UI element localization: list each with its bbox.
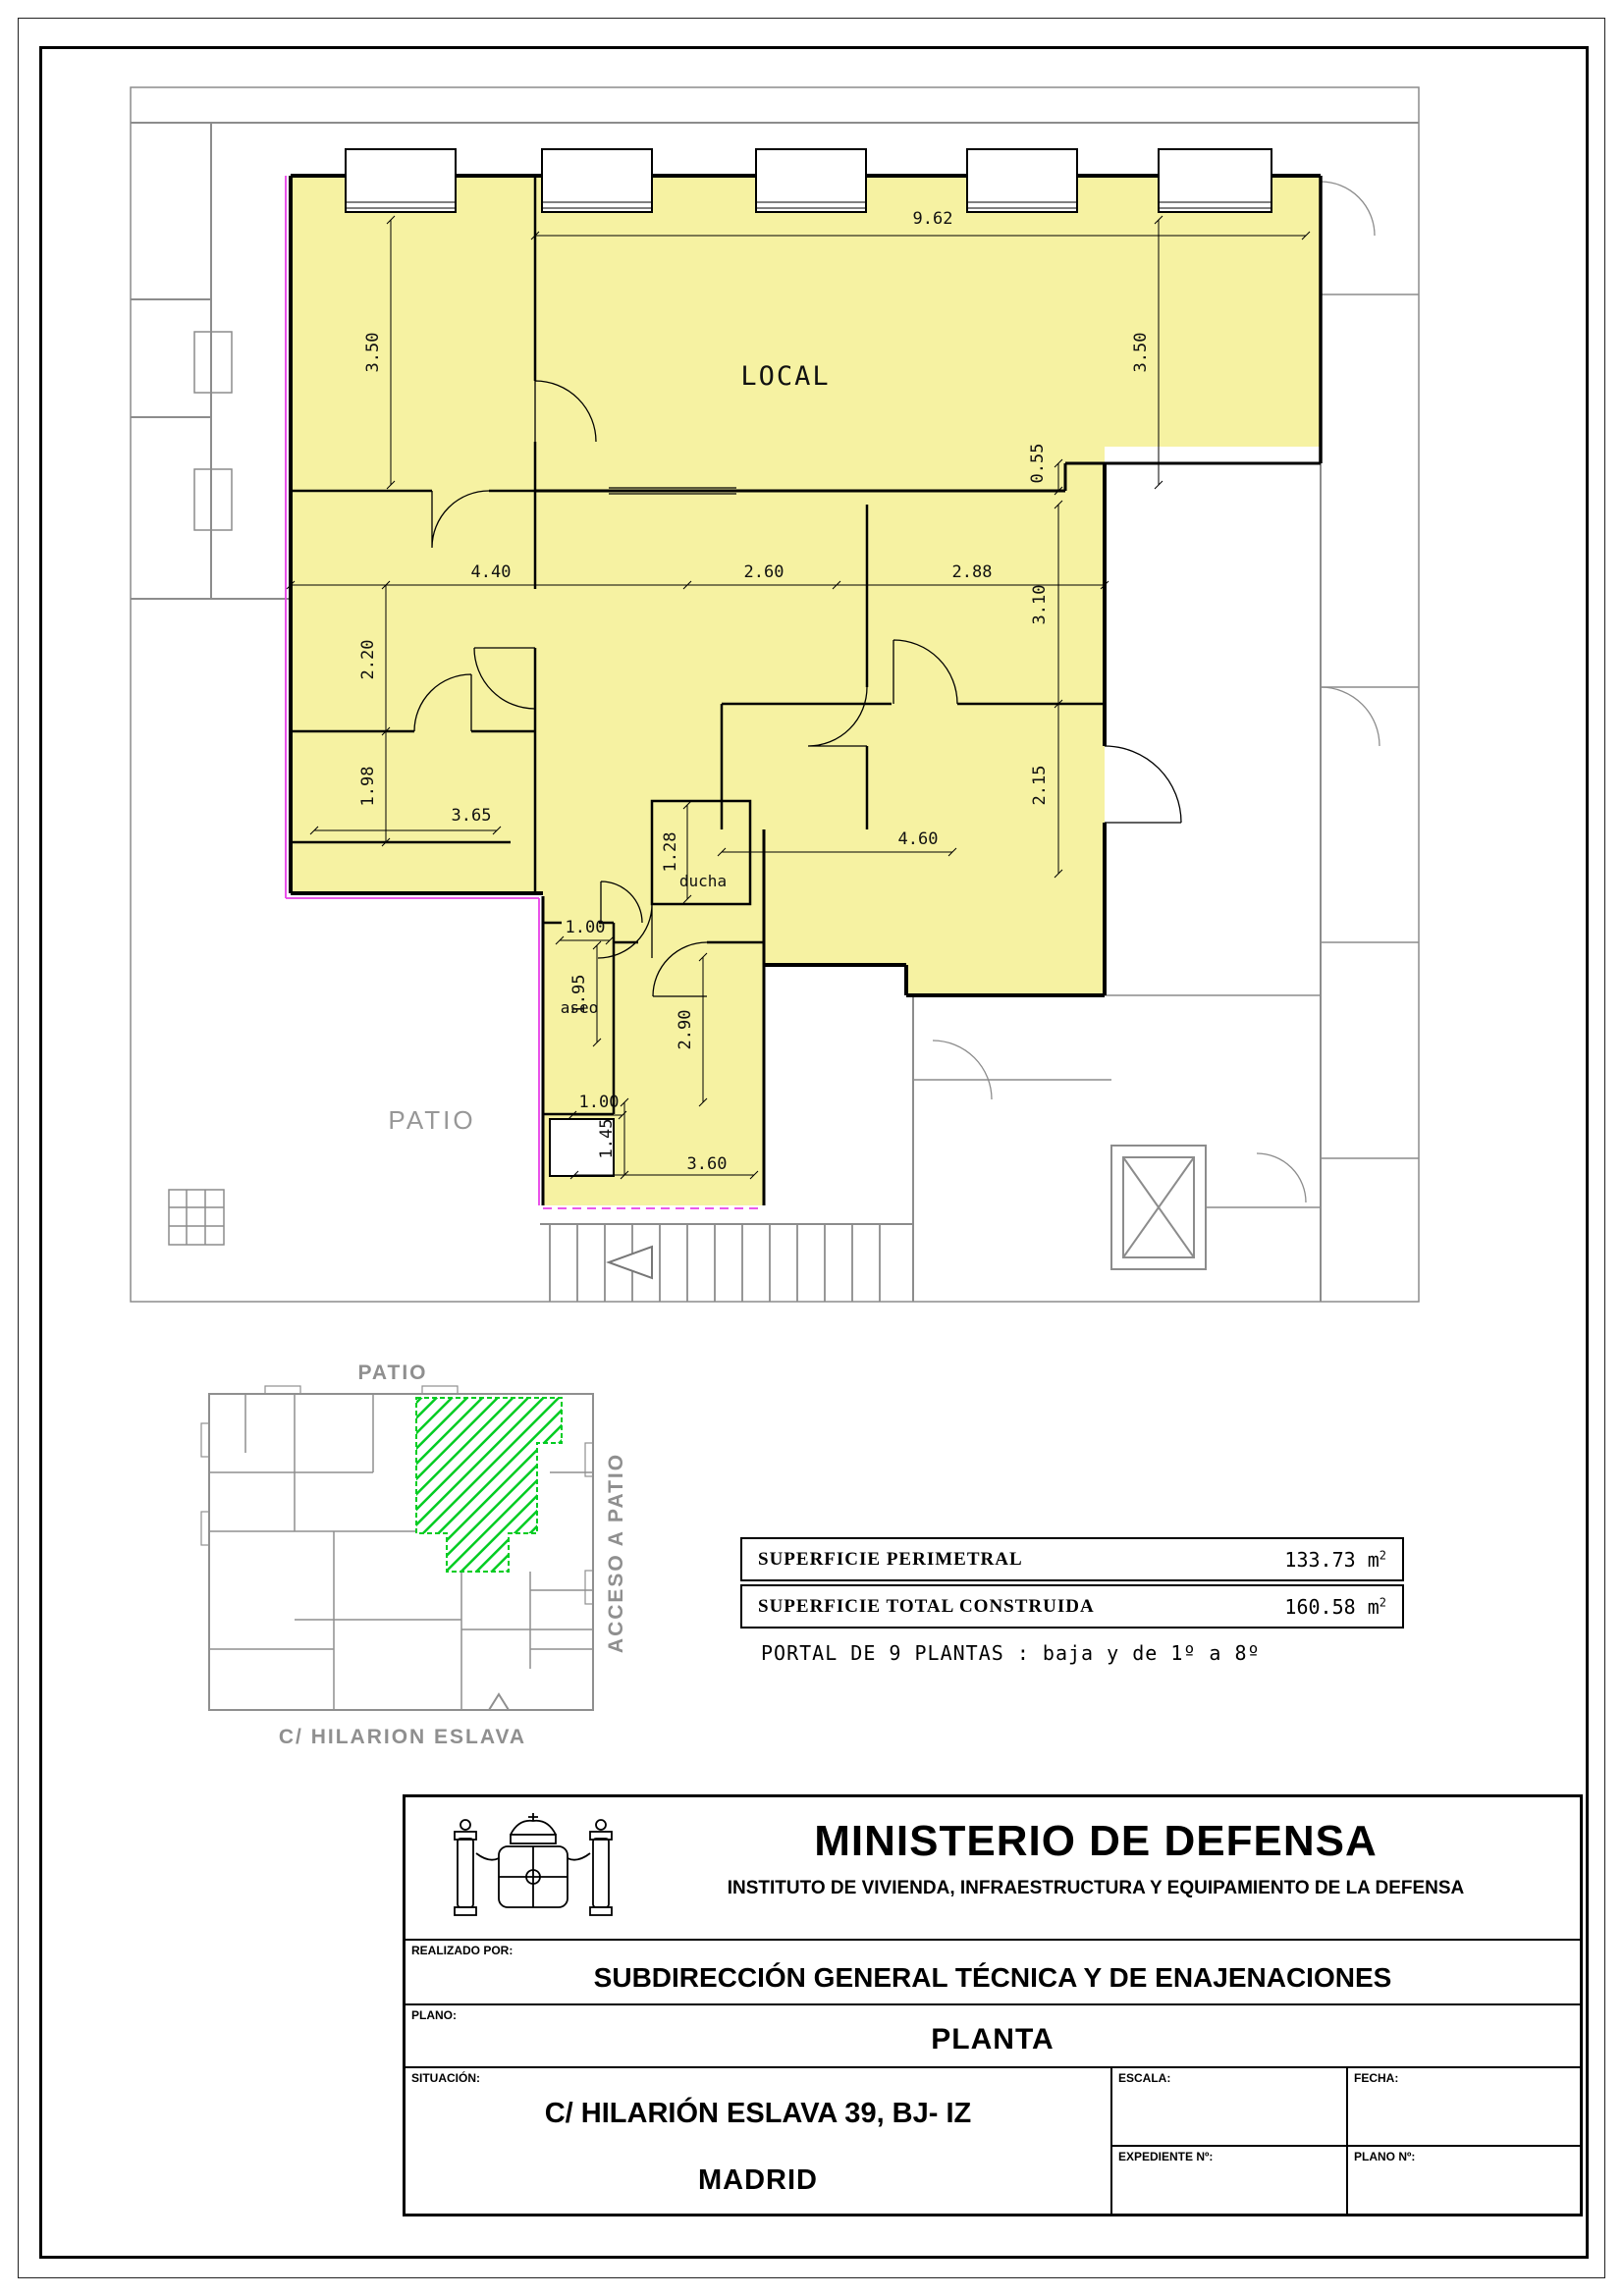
plano-n-cell: PLANO Nº: [1348,2145,1580,2214]
room-label-ducha: ducha [679,872,727,890]
portal-note: PORTAL DE 9 PLANTAS : baja y de 1º a 8º [761,1641,1261,1665]
dim-1-28: 1.28 [661,832,680,873]
subdireccion-title: SUBDIRECCIÓN GENERAL TÉCNICA Y DE ENAJEN… [406,1962,1580,1994]
dim-1-45: 1.45 [597,1119,617,1159]
dim-2-20: 2.20 [358,640,378,680]
dim-2-90: 2.90 [676,1010,695,1050]
dim-3-60: 3.60 [687,1154,728,1174]
situacion-row: SITUACIÓN: C/ HILARIÓN ESLAVA 39, BJ- IZ… [406,2066,1580,2214]
expediente-cell: EXPEDIENTE Nº: [1112,2145,1346,2214]
room-label-patio: PATIO [388,1105,475,1135]
realizado-label: REALIZADO POR: [411,1944,513,1957]
realizado-row: REALIZADO POR: SUBDIRECCIÓN GENERAL TÉCN… [406,1939,1580,2003]
fecha-planon-column: FECHA: PLANO Nº: [1346,2068,1580,2214]
stair-direction-arrow [609,1247,652,1278]
dim-2-88: 2.88 [952,562,993,582]
dim-2-60: 2.60 [744,562,784,582]
title-block-header-row: MINISTERIO DE DEFENSA INSTITUTO DE VIVIE… [406,1797,1580,1939]
table-row: SUPERFICIE TOTAL CONSTRUIDA 160.58 m2 [740,1584,1404,1629]
situacion-label: SITUACIÓN: [411,2071,480,2085]
table-row: SUPERFICIE PERIMETRAL 133.73 m2 [740,1537,1404,1581]
plano-row: PLANO: PLANTA [406,2003,1580,2066]
dim-4-40: 4.40 [471,562,512,582]
dim-1-98: 1.98 [358,767,378,807]
staircase [550,1224,880,1302]
dim-4-60: 4.60 [898,829,939,849]
drawing-sheet: 9.62 3.50 3.50 0.55 4.40 2.60 2.88 2.20 … [0,0,1623,2296]
situacion-cell: SITUACIÓN: C/ HILARIÓN ESLAVA 39, BJ- IZ… [406,2068,1110,2214]
room-label-aseo: aseo [561,998,599,1017]
surface-construida-value: 160.58 m2 [1284,1595,1386,1619]
dim-1-00-aseo: 1.00 [566,918,606,937]
situacion-city: MADRID [406,2164,1110,2197]
ministry-title: MINISTERIO DE DEFENSA [622,1817,1570,1866]
site-patio-label: PATIO [357,1362,427,1384]
expediente-label: EXPEDIENTE Nº: [1118,2150,1213,2163]
surface-construida-label: SUPERFICIE TOTAL CONSTRUIDA [758,1596,1095,1618]
surface-perimetral-value: 133.73 m2 [1284,1548,1386,1572]
fecha-label: FECHA: [1354,2071,1398,2085]
surface-perimetral-label: SUPERFICIE PERIMETRAL [758,1549,1023,1571]
institute-subtitle: INSTITUTO DE VIVIENDA, INFRAESTRUCTURA Y… [622,1878,1570,1899]
dim-3-50-right: 3.50 [1131,333,1151,373]
title-block: MINISTERIO DE DEFENSA INSTITUTO DE VIVIE… [403,1794,1583,2216]
escala-expediente-column: ESCALA: EXPEDIENTE Nº: [1110,2068,1346,2214]
patio-grate [169,1190,224,1245]
escala-cell: ESCALA: [1112,2068,1346,2145]
dim-9-62: 9.62 [913,209,953,229]
dim-2-15: 2.15 [1030,766,1050,806]
site-street-label: C/ HILARION ESLAVA [279,1726,526,1748]
surface-summary-table: SUPERFICIE PERIMETRAL 133.73 m2 SUPERFIC… [740,1537,1404,1629]
dim-3-50-left: 3.50 [363,333,383,373]
dim-3-10: 3.10 [1030,585,1050,625]
coat-of-arms-icon [450,1809,617,1932]
site-key-plan: PATIO ACCESO A PATIO C/ HILARION ESLAVA [201,1362,627,1748]
site-unit-highlight [416,1398,562,1572]
plano-value: PLANTA [406,2023,1580,2056]
site-acceso-label: ACCESO A PATIO [605,1453,627,1653]
fecha-cell: FECHA: [1348,2068,1580,2145]
situacion-address: C/ HILARIÓN ESLAVA 39, BJ- IZ [406,2098,1110,2130]
elevator-shaft [1111,1146,1206,1269]
escala-label: ESCALA: [1118,2071,1170,2085]
dim-1-00-bottom: 1.00 [579,1093,620,1112]
dim-3-65: 3.65 [452,806,492,826]
plano-label: PLANO: [411,2008,457,2022]
dim-0-55: 0.55 [1028,444,1048,484]
plano-n-label: PLANO Nº: [1354,2150,1415,2163]
site-entrance-marker [489,1694,509,1710]
unit-highlight-area [291,176,1321,1205]
room-label-local: LOCAL [740,361,830,392]
